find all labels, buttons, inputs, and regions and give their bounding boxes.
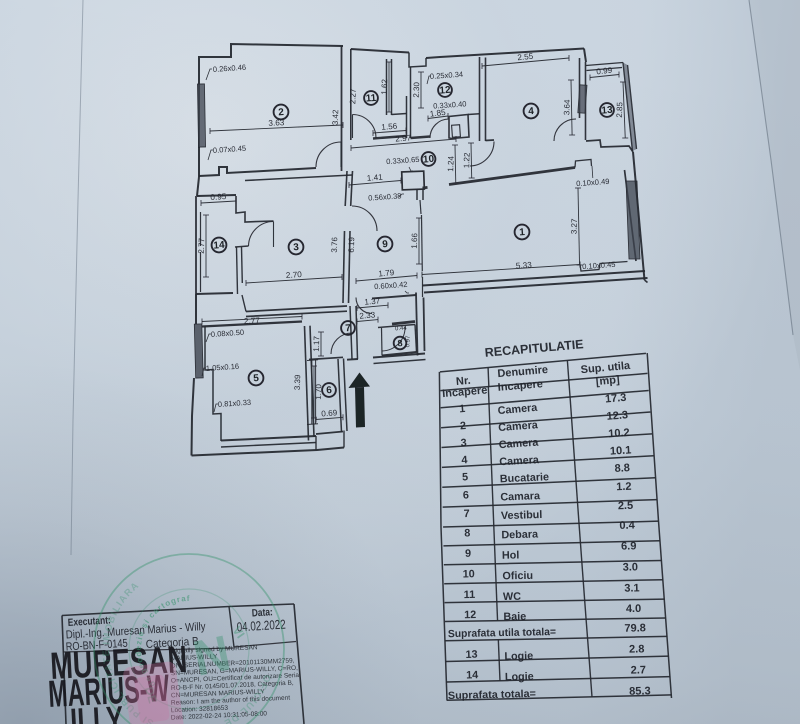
svg-text:2.30: 2.30	[412, 81, 422, 97]
svg-text:2.70: 2.70	[286, 270, 303, 280]
svg-text:Bucatarie: Bucatarie	[500, 471, 550, 485]
svg-text:2.8: 2.8	[629, 643, 645, 655]
svg-text:10.1: 10.1	[610, 444, 632, 457]
svg-text:1.56: 1.56	[381, 122, 398, 132]
svg-text:0.44: 0.44	[395, 326, 408, 333]
svg-text:3.1: 3.1	[624, 582, 639, 594]
svg-text:12.3: 12.3	[606, 409, 628, 423]
svg-text:17.3: 17.3	[605, 392, 627, 406]
svg-text:85.3: 85.3	[629, 685, 651, 698]
svg-text:2: 2	[460, 420, 467, 432]
svg-text:1.41: 1.41	[366, 173, 383, 183]
svg-text:6: 6	[463, 489, 469, 501]
svg-text:ILLY: ILLY	[69, 699, 124, 724]
svg-text:10: 10	[463, 568, 475, 580]
svg-text:1.37: 1.37	[364, 296, 381, 306]
svg-text:3.76: 3.76	[330, 236, 340, 252]
svg-text:1.2: 1.2	[616, 481, 632, 494]
svg-text:0.95: 0.95	[210, 192, 227, 202]
svg-text:1: 1	[459, 403, 466, 415]
svg-text:[mp]: [mp]	[595, 374, 620, 388]
svg-text:4: 4	[461, 454, 468, 466]
svg-text:Debara: Debara	[501, 529, 539, 542]
svg-text:6.19: 6.19	[347, 236, 357, 252]
svg-text:Vestibul: Vestibul	[501, 509, 543, 522]
svg-text:1.62: 1.62	[380, 78, 390, 94]
svg-text:2.5: 2.5	[618, 500, 634, 512]
svg-text:11: 11	[464, 589, 476, 601]
svg-text:3.39: 3.39	[293, 374, 303, 390]
svg-text:0.99: 0.99	[596, 66, 613, 77]
svg-text:Hol: Hol	[502, 549, 520, 561]
svg-text:2.55: 2.55	[517, 52, 534, 62]
svg-text:1.66: 1.66	[410, 232, 420, 248]
svg-text:3: 3	[460, 437, 467, 449]
svg-text:13: 13	[601, 105, 613, 117]
svg-text:14: 14	[466, 669, 478, 681]
svg-text:Camara: Camara	[500, 490, 541, 503]
svg-text:3.42: 3.42	[331, 109, 341, 125]
svg-text:1.17: 1.17	[312, 335, 322, 351]
svg-text:8.8: 8.8	[614, 462, 630, 475]
svg-text:2.27: 2.27	[348, 88, 358, 104]
svg-text:12: 12	[439, 85, 451, 97]
svg-text:Logie: Logie	[505, 671, 534, 684]
svg-text:6.9: 6.9	[621, 540, 637, 552]
svg-text:79.8: 79.8	[624, 622, 646, 634]
svg-text:4.0: 4.0	[626, 603, 641, 615]
svg-text:2.7: 2.7	[631, 664, 647, 676]
svg-text:1.22: 1.22	[462, 152, 472, 168]
svg-text:10: 10	[423, 154, 435, 166]
svg-text:WC: WC	[503, 591, 521, 603]
svg-text:3.64: 3.64	[562, 99, 572, 115]
svg-text:7: 7	[463, 508, 469, 520]
svg-text:0.69: 0.69	[321, 408, 338, 418]
svg-text:8: 8	[397, 338, 403, 348]
svg-text:1.24: 1.24	[446, 155, 456, 171]
svg-text:Camera: Camera	[499, 454, 540, 468]
svg-text:14: 14	[213, 240, 225, 252]
svg-text:2.97: 2.97	[395, 133, 412, 143]
svg-text:Baie: Baie	[503, 611, 526, 623]
svg-text:Suprafata utila totala=: Suprafata utila totala=	[448, 626, 556, 640]
svg-text:2.77: 2.77	[197, 237, 207, 253]
svg-text:5.33: 5.33	[516, 260, 533, 270]
svg-text:0.4: 0.4	[619, 519, 635, 531]
svg-text:1.79: 1.79	[378, 268, 395, 278]
svg-text:3.0: 3.0	[623, 561, 639, 573]
svg-text:2.85: 2.85	[615, 101, 625, 117]
svg-text:5: 5	[462, 471, 469, 483]
svg-text:Suprafata totala=: Suprafata totala=	[448, 688, 536, 702]
svg-text:11: 11	[365, 93, 377, 105]
svg-text:13: 13	[465, 649, 477, 661]
svg-text:2.77: 2.77	[244, 316, 261, 326]
svg-text:Oficiu: Oficiu	[502, 570, 533, 583]
svg-text:12: 12	[464, 609, 476, 621]
svg-text:Logie: Logie	[504, 650, 533, 663]
svg-text:3.27: 3.27	[570, 218, 580, 234]
svg-text:10.2: 10.2	[608, 427, 630, 440]
svg-text:2.33: 2.33	[359, 310, 376, 320]
svg-text:9: 9	[465, 548, 471, 560]
svg-text:8: 8	[464, 527, 470, 539]
